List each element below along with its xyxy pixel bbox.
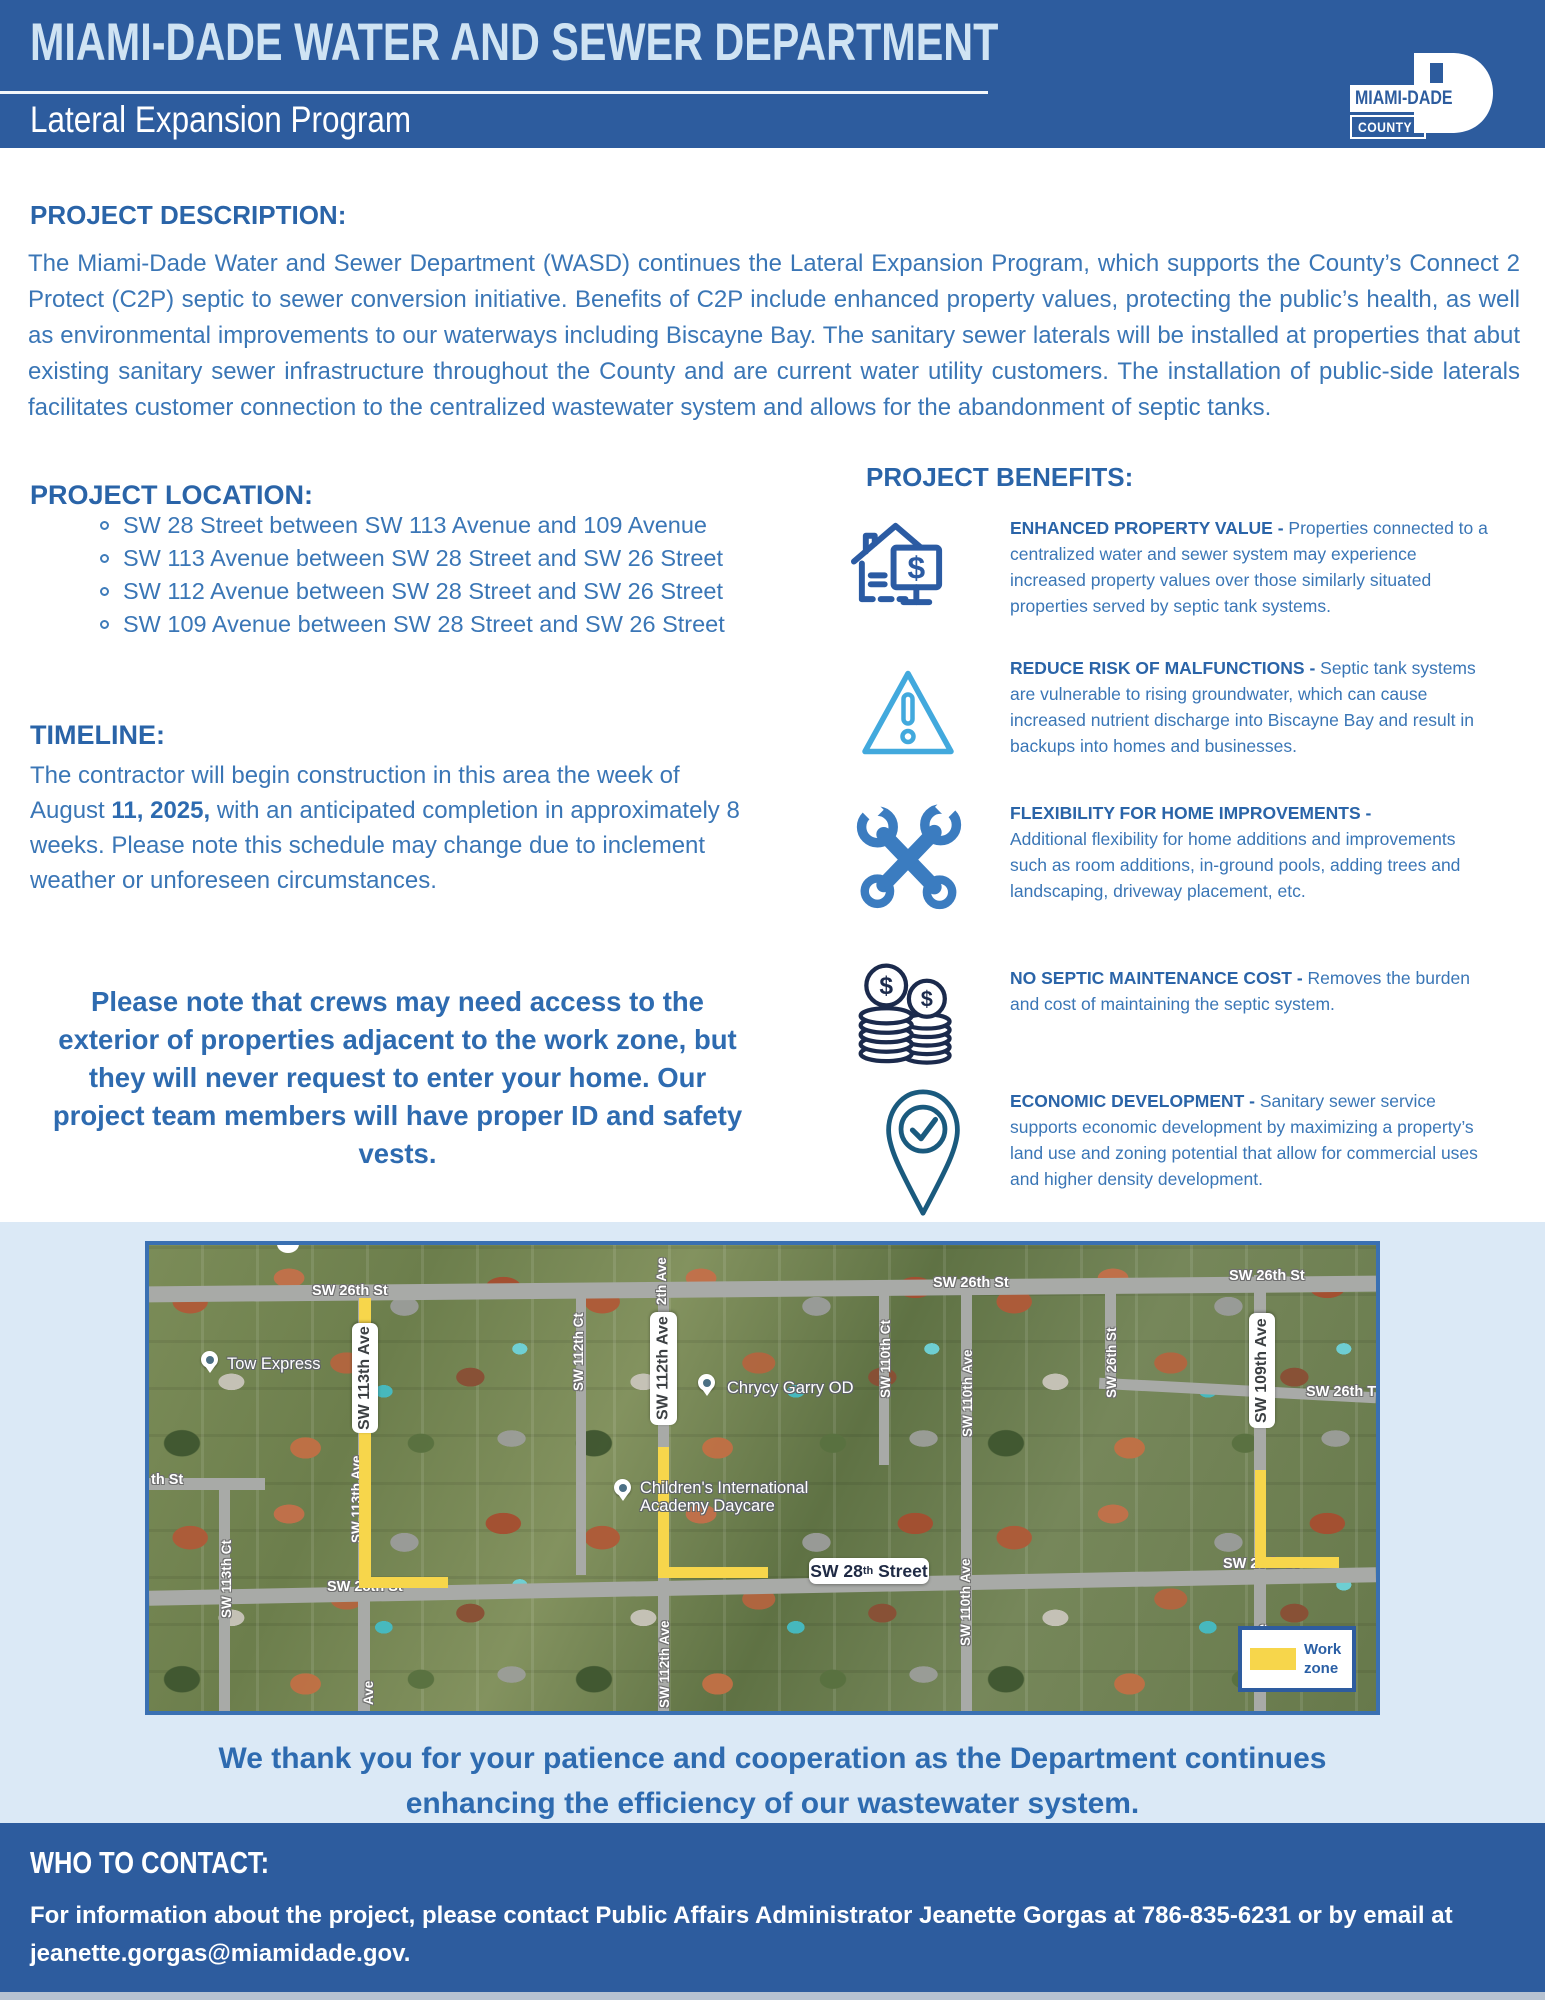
header-divider	[0, 91, 988, 94]
header-banner: MIAMI-DADE WATER AND SEWER DEPARTMENT La…	[0, 0, 1545, 148]
house-dollar-icon: $	[848, 510, 952, 614]
street-label: 2th Ave	[654, 1253, 669, 1305]
work-zone-swatch	[1250, 1648, 1296, 1670]
miami-dade-county-logo: MIAMI-DADE COUNTY	[1350, 44, 1510, 140]
street-pill-sw-109th-ave: SW 109th Ave	[1249, 1313, 1275, 1428]
street-label: SW 26th St	[1104, 1305, 1119, 1398]
description-paragraph: The Miami-Dade Water and Sewer Departmen…	[28, 246, 1520, 426]
poi-label: Tow Express	[227, 1355, 321, 1374]
street-label: SW 112th Ave	[657, 1582, 672, 1708]
logo-county-box: COUNTY	[1350, 115, 1426, 139]
street-label: SW 110th Ave	[958, 1538, 973, 1646]
contact-footer: WHO TO CONTACT: For information about th…	[0, 1823, 1545, 1992]
work-zone-sw-28th-mid	[658, 1567, 768, 1578]
coins-icon: $ $	[855, 952, 959, 1072]
poi-label: Chrycy Garry OD	[727, 1379, 854, 1398]
bullet-icon	[100, 620, 109, 629]
flyer-page: MIAMI-DADE WATER AND SEWER DEPARTMENT La…	[0, 0, 1545, 2000]
aerial-imagery	[149, 1245, 1376, 1711]
poi-label: Children's International	[640, 1479, 808, 1498]
street-label: SW 26th St	[933, 1275, 1009, 1291]
project-area-map: SW 26th St SW 26th St SW 26th St SW 26th…	[145, 1241, 1380, 1715]
street-label: Ave	[361, 1665, 376, 1705]
page-bottom-strip	[0, 1992, 1545, 2000]
page-subtitle: Lateral Expansion Program	[30, 99, 478, 141]
benefit-item: REDUCE RISK OF MALFUNCTIONS - Septic tan…	[1010, 655, 1492, 759]
list-item: SW 113 Avenue between SW 28 Street and S…	[28, 545, 788, 578]
contact-paragraph: For information about the project, pleas…	[30, 1897, 1515, 1973]
work-zone-sw-109th-ave	[1255, 1470, 1266, 1568]
logo-wordmark: MIAMI-DADE	[1350, 85, 1478, 112]
street-label: SW 26th St	[312, 1283, 388, 1299]
bullet-icon	[100, 554, 109, 563]
list-item: SW 112 Avenue between SW 28 Street and S…	[28, 578, 788, 611]
warning-triangle-icon	[858, 650, 958, 775]
street-label: SW 113th Ct	[219, 1516, 234, 1618]
street-pill-sw-28th-street: SW 28th Street	[809, 1558, 929, 1584]
bullet-icon	[100, 521, 109, 530]
legend-label: Work zone	[1304, 1640, 1350, 1678]
benefits-heading: PROJECT BENEFITS:	[866, 462, 1133, 493]
timeline-heading: TIMELINE:	[30, 720, 165, 751]
svg-text:$: $	[879, 973, 893, 1000]
map-pin-icon	[614, 1479, 631, 1502]
street-label: th St	[151, 1472, 183, 1488]
street-pill-sw-113th-ave: SW 113th Ave	[352, 1323, 378, 1433]
svg-text:$: $	[921, 986, 933, 1011]
location-heading: PROJECT LOCATION:	[30, 480, 313, 511]
street-label: SW 112th Ct	[571, 1301, 586, 1391]
work-zone-sw-28th-east	[1255, 1557, 1339, 1568]
location-list: SW 28 Street between SW 113 Avenue and 1…	[28, 512, 788, 644]
page-title: MIAMI-DADE WATER AND SEWER DEPARTMENT	[30, 12, 1272, 73]
contact-heading: WHO TO CONTACT:	[30, 1845, 322, 1881]
bullet-icon	[100, 587, 109, 596]
work-zone-legend: Work zone	[1238, 1626, 1356, 1692]
list-item: SW 109 Avenue between SW 28 Street and S…	[28, 611, 788, 644]
street-label: SW 110th Ave	[960, 1329, 975, 1437]
street-pill-sw-112th-ave: SW 112th Ave	[650, 1312, 677, 1425]
benefit-item: NO SEPTIC MAINTENANCE COST - Removes the…	[1010, 965, 1492, 1017]
benefit-item: ENHANCED PROPERTY VALUE - Properties con…	[1010, 515, 1492, 619]
benefit-item: FLEXIBILITY FOR HOME IMPROVEMENTS -Addit…	[1010, 800, 1492, 904]
description-heading: PROJECT DESCRIPTION:	[30, 200, 346, 231]
benefit-item: ECONOMIC DEVELOPMENT - Sanitary sewer se…	[1010, 1088, 1492, 1192]
work-zone-sw-28th-west	[359, 1577, 448, 1588]
location-check-icon	[880, 1086, 966, 1220]
thank-you-message: We thank you for your patience and coope…	[0, 1736, 1545, 1826]
street-label: SW 26th St	[1229, 1268, 1305, 1284]
timeline-paragraph: The contractor will begin construction i…	[30, 758, 740, 898]
poi-label: Academy Daycare	[640, 1497, 775, 1516]
timeline-date: 11, 2025,	[111, 797, 210, 824]
map-pin-icon	[201, 1351, 218, 1374]
map-pin-icon	[698, 1374, 715, 1397]
list-item: SW 28 Street between SW 113 Avenue and 1…	[28, 512, 788, 545]
access-notice: Please note that crews may need access t…	[40, 983, 755, 1173]
svg-text:$: $	[908, 549, 926, 585]
street-label: SW 26th T	[1306, 1384, 1376, 1400]
street-label: SW 110th Ct	[878, 1303, 893, 1398]
tools-icon	[850, 795, 968, 920]
